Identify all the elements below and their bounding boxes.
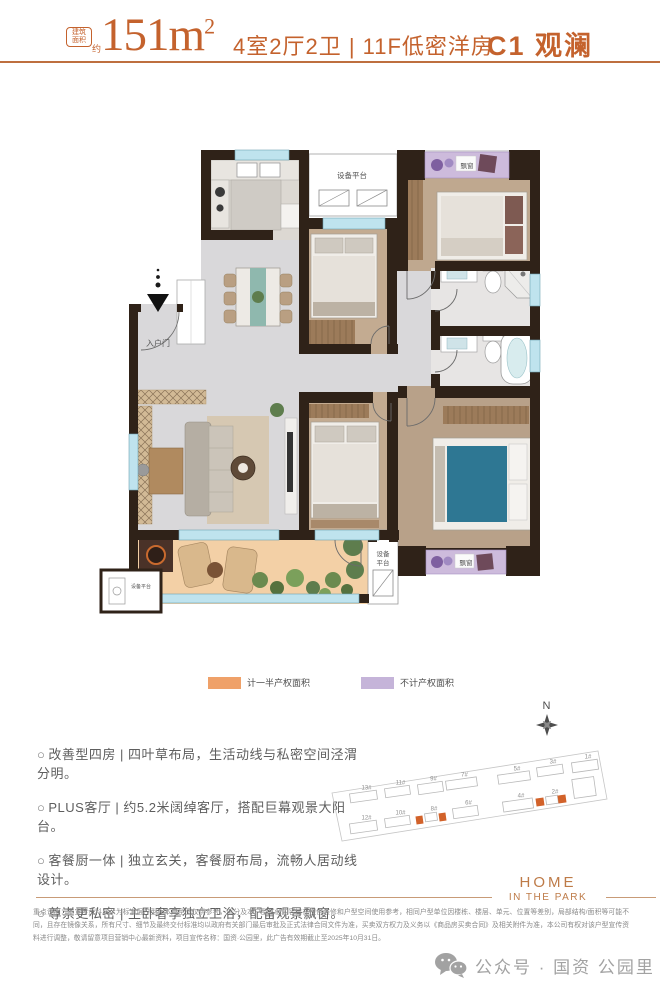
- site-plan-buildings: 13#11#9#7#5#3#1#12#10#8#6#4#2#: [349, 755, 598, 834]
- legend-swatch-orange: [208, 677, 241, 689]
- legend-swatch-purple: [361, 677, 394, 689]
- brand-rule-right: [606, 897, 656, 898]
- feature-text: PLUS客厅 | 约5.2米阔绰客厅，搭配巨幕观景大阳台。: [37, 800, 346, 834]
- disclaimer-text: 重点说明：本宣传资料展示为标准层户型，本户型图仅供参考，部分及本户型其他内容旨在…: [33, 906, 629, 945]
- dining-chair: [224, 274, 236, 287]
- site-building: [384, 815, 410, 827]
- site-building-highlight: [438, 813, 446, 822]
- site-building: [502, 798, 533, 812]
- area-badge-line2: 面积: [67, 37, 91, 45]
- site-building-highlight: [415, 816, 423, 825]
- area-badge-suffix: 约: [92, 42, 101, 55]
- area-badge-line1: 建筑: [67, 29, 91, 37]
- site-building: [537, 764, 564, 777]
- brand-line1: HOME: [498, 874, 598, 891]
- legend-label-no-area: 不计产权面积: [400, 676, 454, 689]
- tv: [287, 432, 293, 492]
- site-building-label: 12#: [361, 816, 372, 822]
- wechat-account-link[interactable]: 公众号 · 国资 公园里: [435, 952, 655, 978]
- desk: [149, 448, 183, 494]
- plant: [270, 403, 284, 417]
- site-building-label: 2#: [552, 790, 559, 796]
- toilet-1: [485, 271, 501, 293]
- balcony-table: [207, 562, 223, 578]
- site-building-label: 11#: [396, 781, 406, 787]
- site-building: [446, 777, 478, 790]
- wechat-account-label: 公众号 · 国资 公园里: [475, 953, 655, 978]
- header-divider: [0, 61, 660, 63]
- area-value: 151m2: [101, 8, 214, 62]
- feature-item: ○PLUS客厅 | 约5.2米阔绰客厅，搭配巨幕观景大阳台。: [37, 797, 367, 835]
- site-building-label: 7#: [461, 773, 468, 779]
- site-building-highlight: [557, 794, 566, 803]
- brand-line2: IN THE PARK: [498, 892, 598, 903]
- compass-n-label: N: [531, 700, 563, 712]
- area-number: 151m: [101, 9, 204, 61]
- label-entry-door: 入户门: [146, 338, 170, 348]
- flyer-page: 建筑 面积 约 151m2 4室2厅2卫 | 11F低密洋房 C1 观澜: [0, 0, 660, 991]
- site-building: [546, 795, 559, 805]
- bullet-icon: ○: [37, 853, 45, 868]
- floor-plan: 设备平台 入户门 飘窗 飘窗 设备 平台 设备平台: [85, 118, 579, 622]
- label-bay-window-bottom: 飘窗: [460, 558, 473, 567]
- feature-text: 改善型四房 | 四叶草布局，生活动线与私密空间泾渭分明。: [37, 747, 357, 781]
- desk-chair: [137, 464, 149, 476]
- brand-logo: HOME IN THE PARK: [498, 874, 598, 903]
- legend-label-half-area: 计一半产权面积: [247, 676, 310, 689]
- label-equipment-right-2: 平台: [377, 558, 390, 567]
- sofa: [185, 422, 211, 516]
- feature-item: ○改善型四房 | 四叶草布局，生活动线与私密空间泾渭分明。: [37, 744, 367, 782]
- stove-burner: [215, 187, 225, 197]
- kitchen-sink: [237, 163, 257, 177]
- site-building-highlight: [535, 797, 544, 806]
- label-bay-window-top: 飘窗: [461, 161, 474, 170]
- equipment-corner-box: [101, 570, 161, 612]
- site-building-label: 10#: [395, 811, 406, 817]
- site-building: [349, 820, 377, 834]
- feature-item: ○客餐厨一体 | 独立玄关，客餐厨布局，流畅人居动线设计。: [37, 850, 367, 888]
- label-equipment-top: 设备平台: [337, 170, 367, 180]
- site-building: [350, 790, 378, 803]
- unit-specs: 4室2厅2卫 | 11F低密洋房: [233, 29, 494, 61]
- site-building-label: 9#: [430, 777, 437, 783]
- site-building: [452, 805, 478, 818]
- site-building-label: 6#: [465, 801, 472, 807]
- site-building-label: 13#: [361, 786, 372, 792]
- kitchen-island: [231, 180, 281, 230]
- unit-name: C1 观澜: [487, 24, 593, 63]
- site-building: [384, 785, 410, 797]
- area-badge: 建筑 面积: [66, 27, 92, 47]
- site-plan: 13#11#9#7#5#3#1#12#10#8#6#4#2#: [330, 735, 660, 885]
- wechat-icon: [435, 952, 467, 978]
- legend-item-no-area: 不计产权面积: [361, 676, 454, 689]
- label-equipment-corner: 设备平台: [131, 583, 151, 590]
- bullet-icon: ○: [37, 747, 45, 762]
- site-building: [417, 781, 443, 794]
- brand-rule-left: [36, 897, 492, 898]
- toilet-2: [485, 341, 501, 363]
- site-building-label: 5#: [514, 767, 521, 773]
- dining-plant: [252, 291, 264, 303]
- site-building-label: 1#: [585, 755, 592, 761]
- label-equipment-right-1: 设备: [377, 549, 391, 558]
- kitchen-sink2: [260, 163, 280, 177]
- site-building-label: 3#: [550, 760, 557, 766]
- site-building: [425, 812, 438, 822]
- site-building: [571, 759, 598, 773]
- area-sup: 2: [204, 13, 214, 38]
- feature-text: 客餐厨一体 | 独立玄关，客餐厨布局，流畅人居动线设计。: [37, 853, 357, 887]
- site-building: [498, 771, 531, 784]
- site-building: [572, 777, 596, 799]
- site-building-label: 4#: [518, 794, 525, 800]
- legend-item-half-area: 计一半产权面积: [208, 676, 310, 689]
- bullet-icon: ○: [37, 800, 45, 815]
- site-building-label: 8#: [431, 807, 438, 813]
